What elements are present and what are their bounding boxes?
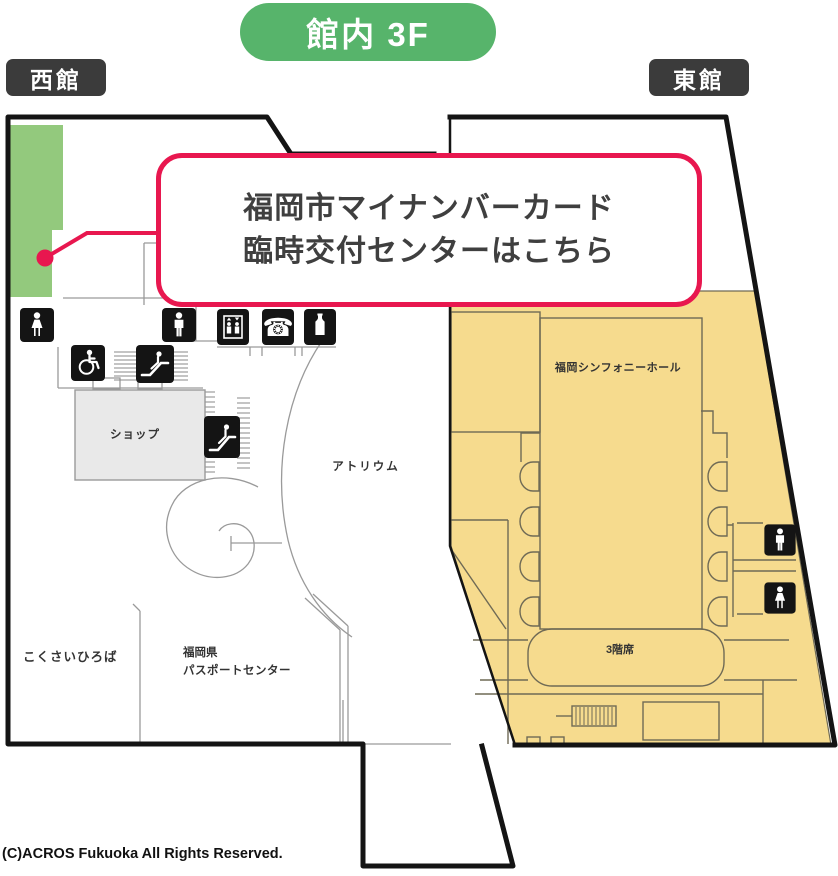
svg-text:☎: ☎ bbox=[262, 314, 293, 342]
escalator-icon bbox=[136, 345, 174, 383]
telephone-icon: ☎ bbox=[262, 309, 294, 345]
wheelchair-icon bbox=[71, 345, 105, 381]
spiral-stair bbox=[167, 478, 258, 578]
male-toilet-icon bbox=[162, 308, 196, 342]
elevator-icon bbox=[217, 309, 249, 345]
female-toilet-icon bbox=[764, 582, 795, 613]
floor-badge: 館内 3F bbox=[240, 3, 496, 61]
passport-center-label-1: 福岡県 bbox=[182, 645, 218, 659]
atrium-label: アトリウム bbox=[332, 460, 400, 473]
atrium-arc bbox=[282, 341, 352, 637]
copyright-text: (C)ACROS Fukuoka All Rights Reserved. bbox=[2, 846, 283, 862]
escalator-icon bbox=[204, 416, 240, 458]
callout-line-2: 臨時交付センターはこちら bbox=[243, 230, 615, 273]
west-wing-label: 西館 bbox=[6, 59, 106, 96]
male-toilet-icon bbox=[764, 524, 795, 555]
floor-map-page: ショップ アトリウム 福岡シンフォニーホール 3階席 こくさいひろば 福岡県 パ… bbox=[0, 0, 838, 876]
kokusai-hiroba-label: こくさいひろば bbox=[23, 649, 118, 664]
floor-badge-label: 館内 3F bbox=[306, 8, 430, 56]
passport-center-label-2: パスポートセンター bbox=[183, 663, 291, 677]
floor-map-svg: ショップ アトリウム 福岡シンフォニーホール 3階席 こくさいひろば 福岡県 パ… bbox=[0, 0, 838, 876]
mynumber-callout: 福岡市マイナンバーカード 臨時交付センターはこちら bbox=[156, 153, 702, 307]
mynumber-highlight-area bbox=[10, 125, 63, 297]
callout-connector bbox=[37, 233, 163, 267]
vending-machine-icon bbox=[304, 309, 336, 345]
shop-label: ショップ bbox=[110, 427, 160, 441]
third-floor-seats-label: 3階席 bbox=[606, 642, 634, 656]
symphony-hall-label: 福岡シンフォニーホール bbox=[554, 360, 681, 374]
east-wing-label: 東館 bbox=[649, 59, 749, 96]
female-toilet-icon bbox=[20, 308, 54, 342]
callout-line-1: 福岡市マイナンバーカード bbox=[243, 187, 614, 230]
